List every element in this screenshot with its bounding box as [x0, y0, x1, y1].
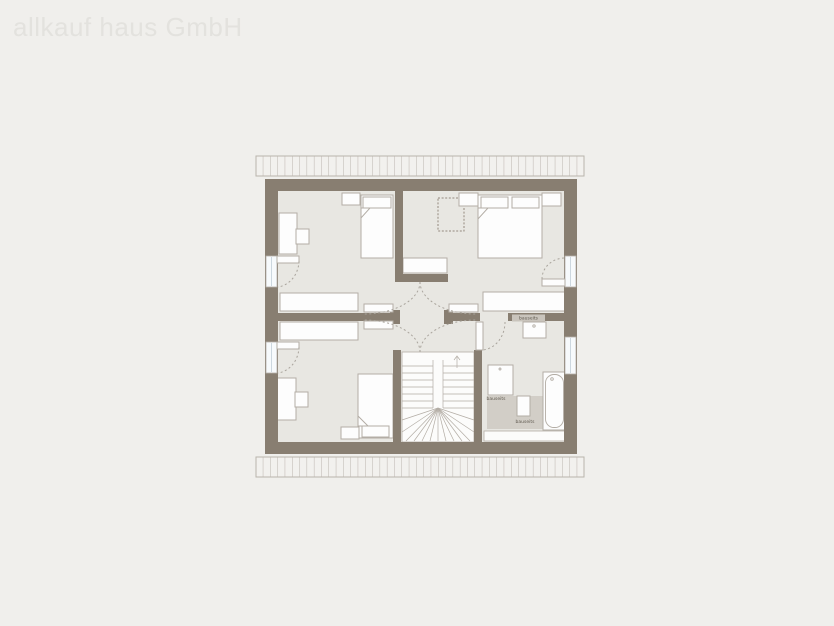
eaves-hatch-bottom — [256, 457, 584, 477]
exterior-wall-top — [265, 179, 577, 191]
washbasin-bauseits-label: bauseits — [519, 316, 539, 322]
wall-mid-left — [278, 313, 394, 321]
door-leaf-bedroom-top-right — [449, 304, 478, 312]
pillow — [362, 426, 389, 437]
staircase — [402, 352, 474, 442]
pillow-left — [481, 197, 508, 208]
wall-between-top-bedrooms — [395, 191, 403, 275]
exterior-wall-left — [265, 179, 278, 454]
floor-plan-drawing: bauseits bauseits bauseits — [0, 0, 834, 626]
wardrobe — [280, 293, 358, 311]
wardrobe — [280, 322, 358, 340]
window-casement-leaf — [277, 256, 299, 263]
door-leaf-bedroom-bottom-left — [364, 321, 393, 329]
wall-stairs-left — [393, 350, 401, 442]
wall-stairs-bath — [474, 350, 482, 442]
window-casement-leaf — [542, 279, 565, 286]
wardrobe — [483, 292, 565, 311]
nightstand-left — [459, 193, 478, 206]
washbasin — [523, 322, 546, 338]
pillow — [363, 197, 391, 208]
bath-floor-bauseits-label: bauseits — [516, 419, 536, 425]
desk-chair — [295, 392, 308, 407]
nightstand — [341, 427, 359, 439]
bath-knee-niche — [484, 431, 565, 441]
pillow-right — [512, 197, 539, 208]
bathtub — [543, 372, 566, 430]
desk — [276, 378, 296, 420]
eaves-hatch-top — [256, 156, 584, 176]
sideboard — [403, 258, 447, 273]
wall-cap-top — [395, 274, 448, 282]
nightstand — [342, 193, 360, 205]
shower-bauseits-label: bauseits — [487, 396, 507, 402]
toilet — [517, 396, 530, 416]
exterior-wall-bottom — [265, 442, 577, 454]
nightstand-right — [542, 193, 561, 206]
door-leaf-bathroom — [476, 322, 483, 350]
desk — [279, 213, 297, 254]
window-casement-leaf — [277, 342, 299, 349]
window-right-bath — [565, 337, 576, 374]
floor-plan-page: allkauf haus GmbH — [0, 0, 834, 626]
desk-chair — [296, 229, 309, 244]
